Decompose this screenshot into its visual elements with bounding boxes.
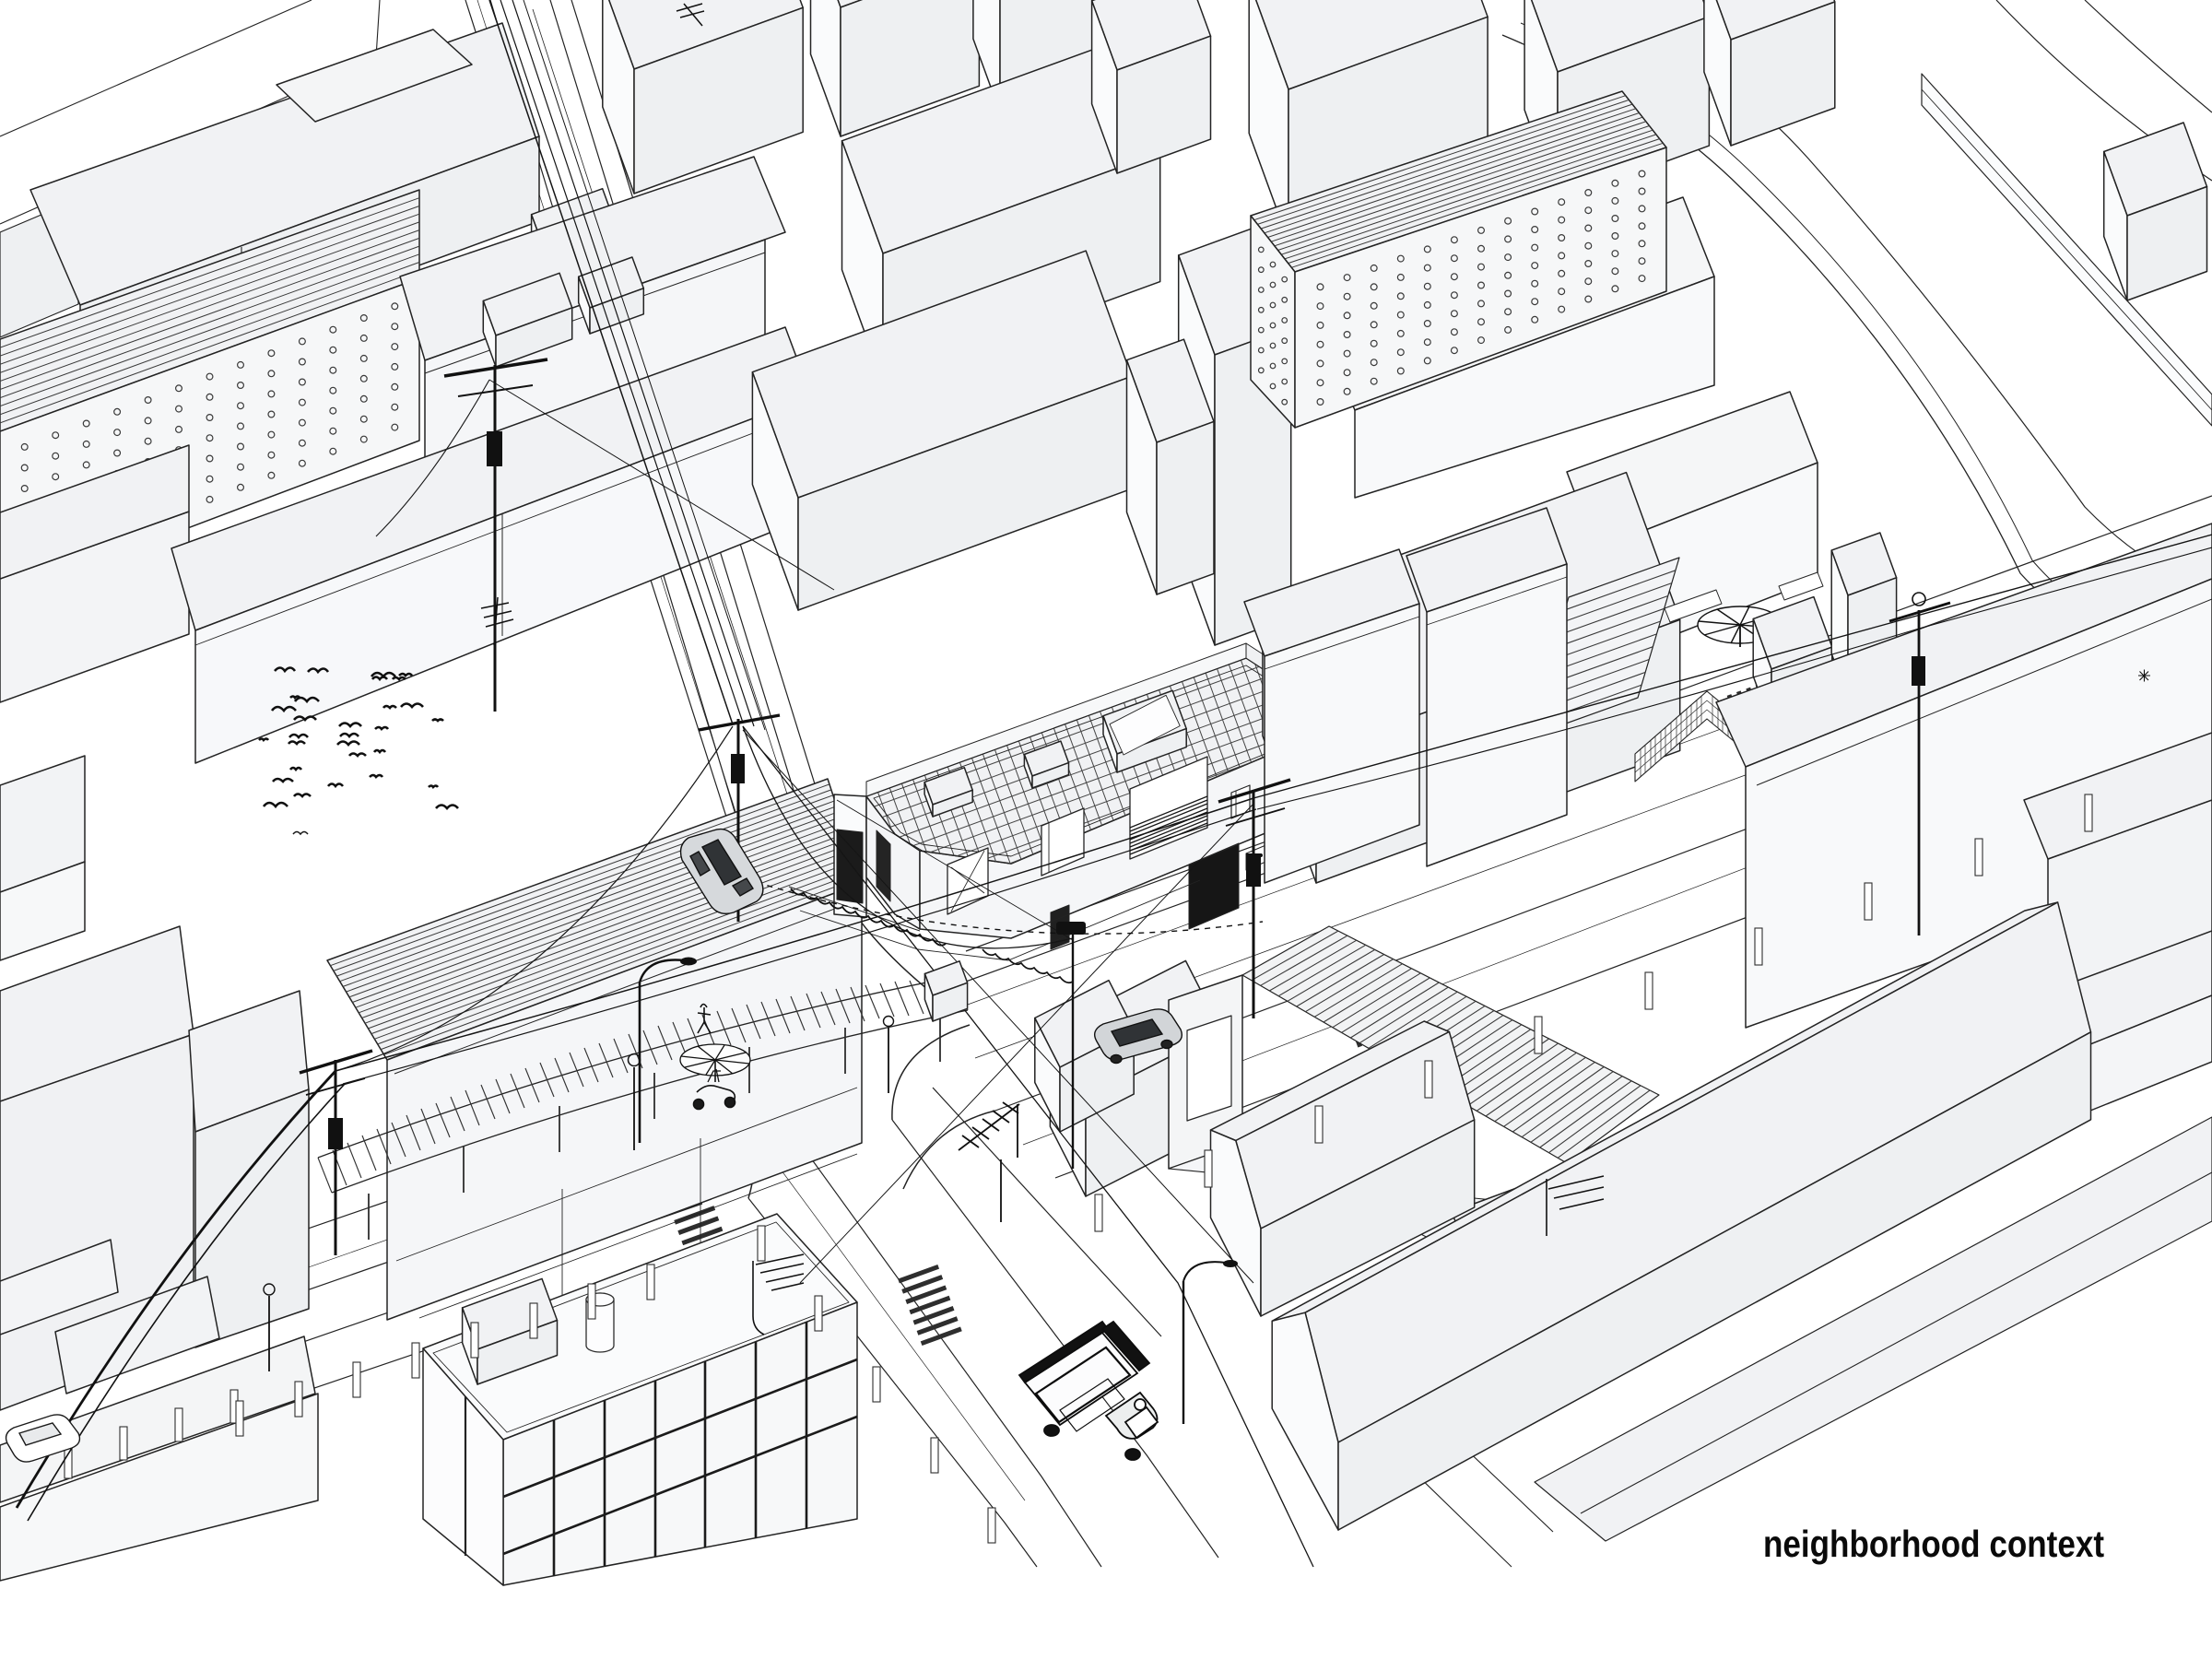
svg-text:neighborhood context: neighborhood context (1763, 1523, 2104, 1565)
